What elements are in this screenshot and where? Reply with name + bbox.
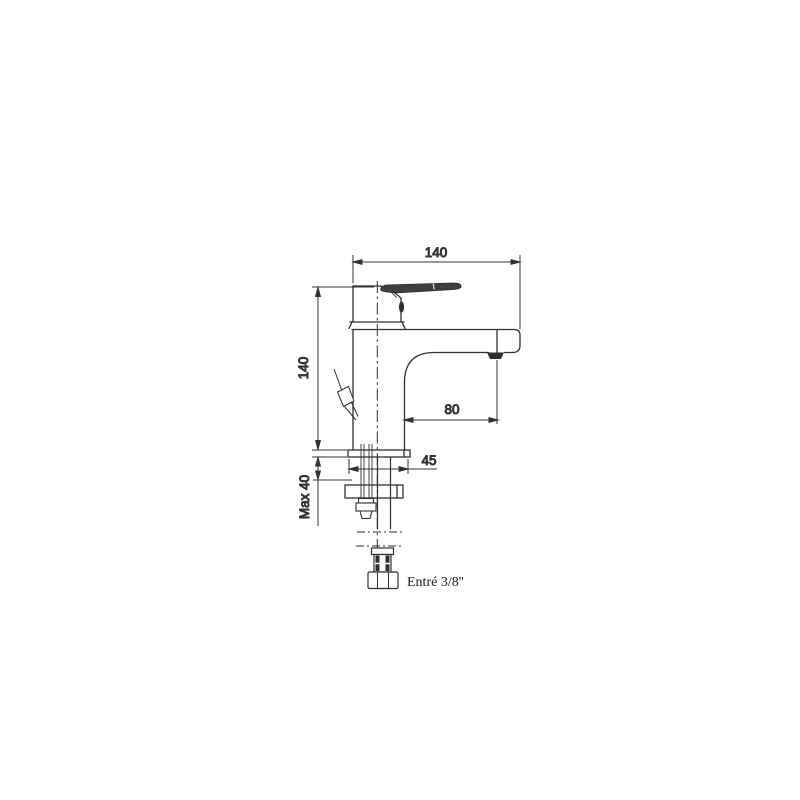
max-deck-thickness-label: Max 40 — [297, 475, 312, 519]
arrowhead-right — [399, 467, 408, 472]
deck-flange — [348, 450, 410, 457]
flare-right — [402, 322, 405, 329]
overall-height-label: 140 — [296, 357, 311, 380]
dimension-overall-height: 140 — [296, 287, 374, 450]
spout-projection-label: 80 — [444, 402, 459, 417]
arrowhead-top — [316, 288, 321, 297]
mounting-plate — [345, 485, 403, 498]
technical-drawing-canvas: 140 140 Max 40 80 45 Entré 3/8'' — [0, 0, 800, 800]
flare-left — [349, 322, 352, 329]
arrowhead-left — [353, 260, 362, 265]
dimension-spout-projection: 80 — [404, 360, 498, 424]
arrowhead-down — [316, 471, 321, 480]
dimension-max-deck-thickness: Max 40 — [297, 457, 352, 526]
faucet-handle — [381, 283, 461, 313]
supply-pipe — [378, 457, 391, 529]
handle-blade — [381, 283, 461, 293]
dimension-base-width: 45 — [349, 453, 437, 474]
fixing-rod-detail — [334, 369, 358, 420]
arrowhead-left — [349, 467, 358, 472]
overall-width-label: 140 — [425, 245, 448, 260]
arrowhead-up — [316, 458, 321, 467]
arrowhead-bottom — [316, 441, 321, 450]
inlet-connector — [368, 548, 398, 589]
inlet-connection-label: Entré 3/8'' — [407, 575, 464, 590]
threaded-stud — [361, 444, 372, 498]
arrowhead-left — [404, 418, 413, 423]
base-width-label: 45 — [421, 453, 436, 468]
faucet-body — [349, 286, 520, 450]
connector-collar — [372, 548, 394, 555]
hex-nut — [368, 572, 398, 589]
faucet-technical-drawing: 140 140 Max 40 80 45 Entré 3/8'' — [0, 0, 800, 800]
mounting-nut — [356, 499, 376, 519]
aerator — [487, 353, 504, 360]
arrowhead-right — [511, 260, 520, 265]
handle-side-detail — [399, 301, 404, 312]
